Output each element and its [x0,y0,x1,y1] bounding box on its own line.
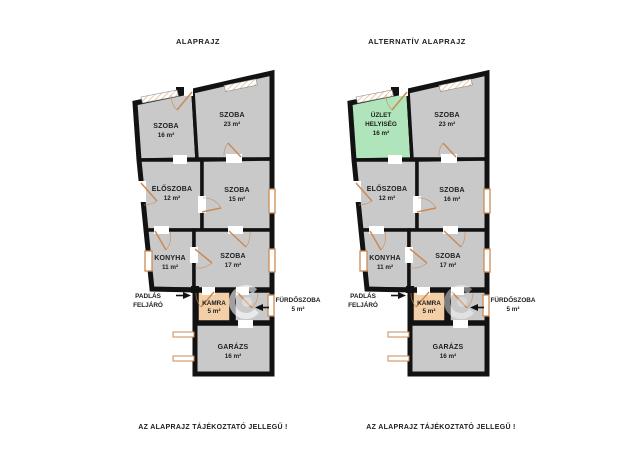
room-label: ELŐSZOBA [152,184,193,193]
room-label: SZOBA [153,123,179,130]
room-area: 5 m² [208,308,221,315]
room-label: KONYHA [369,255,401,262]
room-area: 12 m² [164,195,180,202]
floor-plan-right: ALTERNATÍV ALAPRAJZ ÜZLET HELYISÉG 16 m²… [348,37,536,431]
bathroom-area: 5 m² [507,306,520,313]
attic-label: FELJÁRÓ [133,300,163,309]
room-label: KAMRA [202,300,226,307]
plan-title: ALTERNATÍV ALAPRAJZ [368,37,466,46]
room-area: 11 m² [377,264,393,271]
room-label: ÜZLET [371,110,392,119]
room-label: HELYISÉG [365,119,397,128]
room-area: 5 m² [423,308,436,315]
room-area: 16 m² [373,130,389,137]
room-label: SZOBA [434,112,460,119]
exterior-step [173,356,194,361]
plan-caption: AZ ALAPRAJZ TÁJÉKOZTATÓ JELLEGŰ ! [366,422,515,431]
window [269,249,275,272]
room-area: 12 m² [379,195,395,202]
floor-plans-canvas: ALAPRAJZ SZOBA 16 m² SZOBA 23 m² ELŐSZOB… [0,0,640,452]
room-area: 16 m² [444,196,460,203]
chimney-block [406,286,414,293]
room-label: ELŐSZOBA [367,184,408,193]
exterior-step [173,332,194,337]
room-label: SZOBA [435,253,461,260]
bathroom-label: FÜRDŐSZOBA [275,295,320,304]
exterior-step [388,356,409,361]
room-area: 16 m² [158,132,174,139]
attic-label: PADLÁS [350,291,377,300]
room-area: 15 m² [229,196,245,203]
plan-caption: AZ ALAPRAJZ TÁJÉKOZTATÓ JELLEGŰ ! [138,422,287,431]
floor-plan-left: ALAPRAJZ SZOBA 16 m² SZOBA 23 m² ELŐSZOB… [133,37,321,431]
room-area: 17 m² [225,262,241,269]
room-label: SZOBA [219,112,245,119]
room-area: 17 m² [440,262,456,269]
attic-arrow-icon [398,292,406,299]
chimney-block [191,286,199,293]
exterior-step [388,332,409,337]
window [484,189,490,213]
room-area: 23 m² [224,121,240,128]
room-area: 16 m² [225,353,241,360]
room-area: 11 m² [162,264,178,271]
window [360,251,367,271]
window [484,249,490,272]
room-label: SZOBA [224,187,250,194]
room-area: 23 m² [439,121,455,128]
window [145,251,152,271]
room-label: SZOBA [439,187,465,194]
room-label: SZOBA [220,253,246,260]
room-label: KONYHA [154,255,186,262]
window [269,189,275,213]
walls-left [135,73,272,374]
room-label: KAMRA [417,300,441,307]
attic-label: FELJÁRÓ [348,300,378,309]
window [268,295,274,316]
room-area: 16 m² [440,353,456,360]
room-label: GARÁZS [433,342,464,351]
attic-label: PADLÁS [135,291,162,300]
plan-title: ALAPRAJZ [176,37,220,46]
attic-arrow-icon [183,292,191,299]
bathroom-area: 5 m² [292,306,305,313]
window [483,295,489,316]
room-label: GARÁZS [218,342,249,351]
bathroom-label: FÜRDŐSZOBA [490,295,535,304]
room-szoba-middle [417,159,487,230]
room-szoba-middle [202,159,272,230]
